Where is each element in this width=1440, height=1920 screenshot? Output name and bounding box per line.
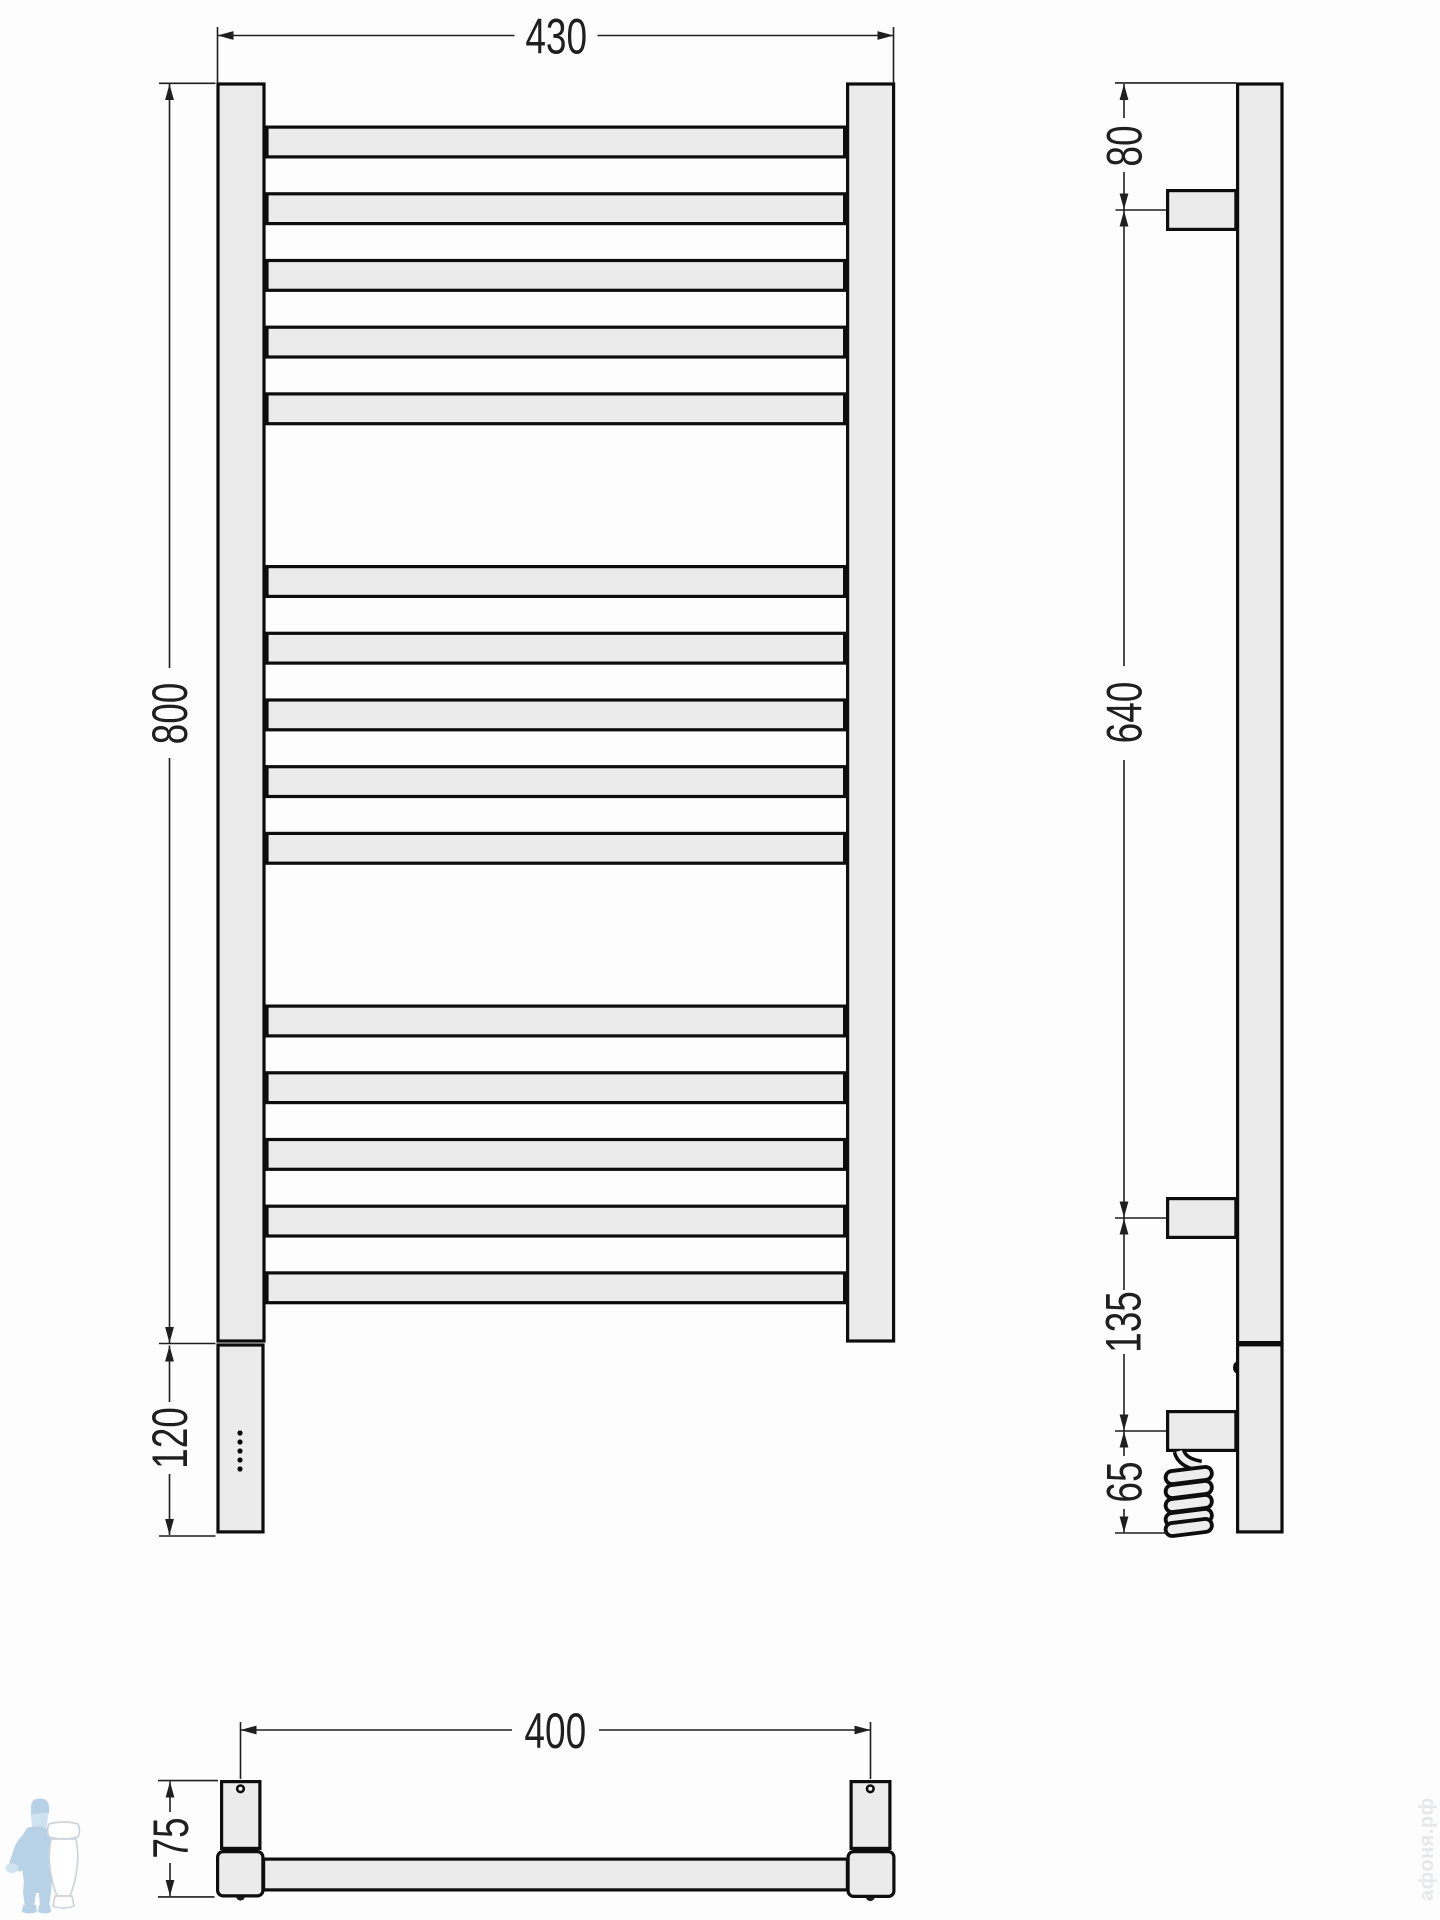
svg-text:800: 800 [143,683,199,745]
svg-text:75: 75 [144,1817,200,1858]
svg-text:400: 400 [524,1704,586,1760]
svg-text:65: 65 [1097,1461,1153,1502]
svg-text:640: 640 [1097,682,1153,744]
svg-text:афоня.рф: афоня.рф [1416,1797,1438,1901]
svg-text:430: 430 [525,9,587,65]
svg-text:120: 120 [143,1407,199,1469]
svg-text:80: 80 [1097,125,1153,166]
svg-text:135: 135 [1096,1291,1152,1353]
